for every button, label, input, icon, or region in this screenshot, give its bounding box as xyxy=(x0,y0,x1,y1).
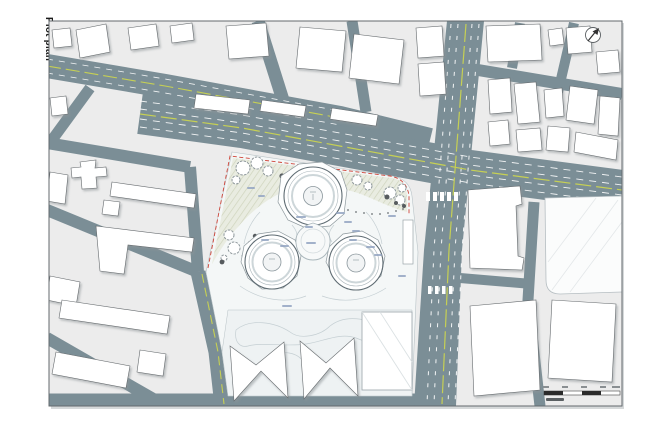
plot-plan-sheet: Plot plan xyxy=(0,0,650,433)
north-arrow-icon xyxy=(586,28,601,43)
plot-plan-canvas: Plot plan xyxy=(0,0,650,433)
tower-north xyxy=(278,162,347,228)
